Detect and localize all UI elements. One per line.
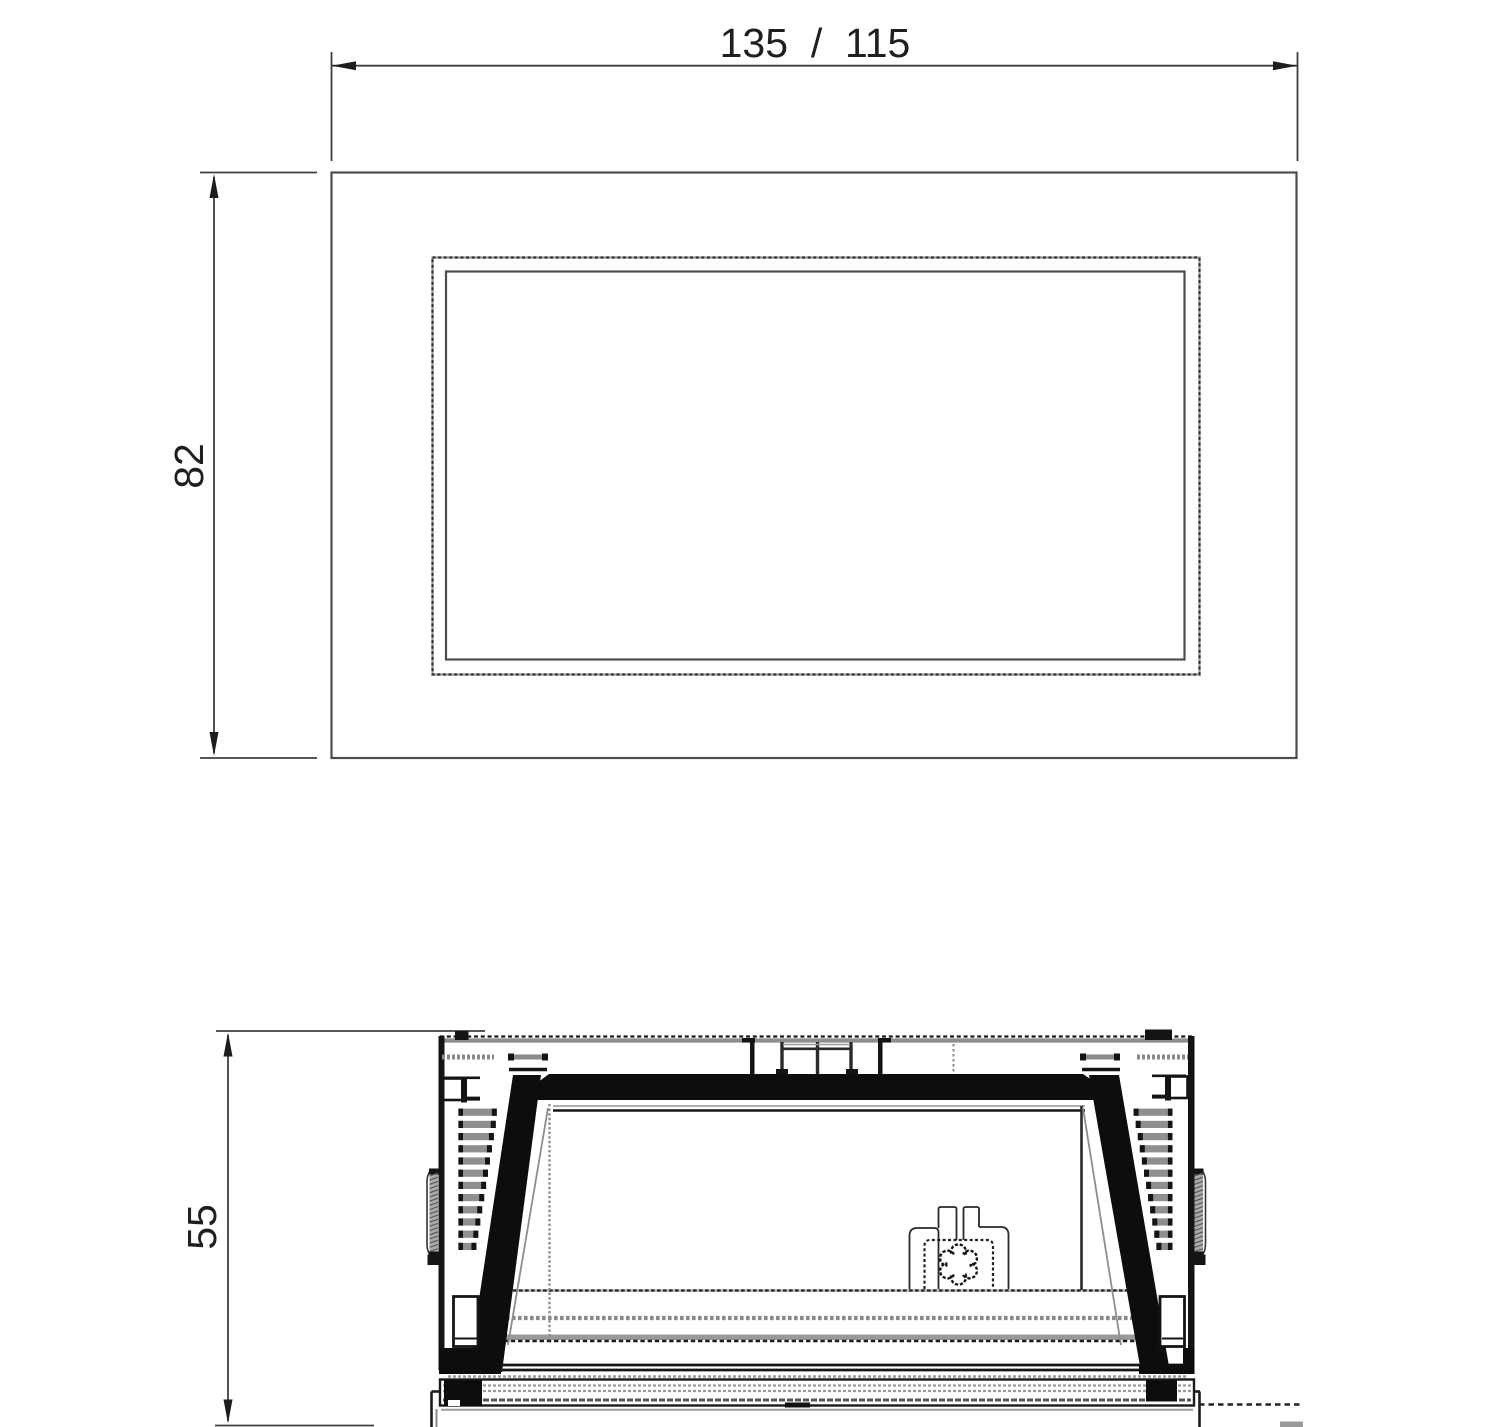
svg-text:55: 55 bbox=[179, 1204, 225, 1250]
svg-text:135 / 115: 135 / 115 bbox=[720, 20, 911, 66]
svg-text:82: 82 bbox=[166, 443, 212, 489]
